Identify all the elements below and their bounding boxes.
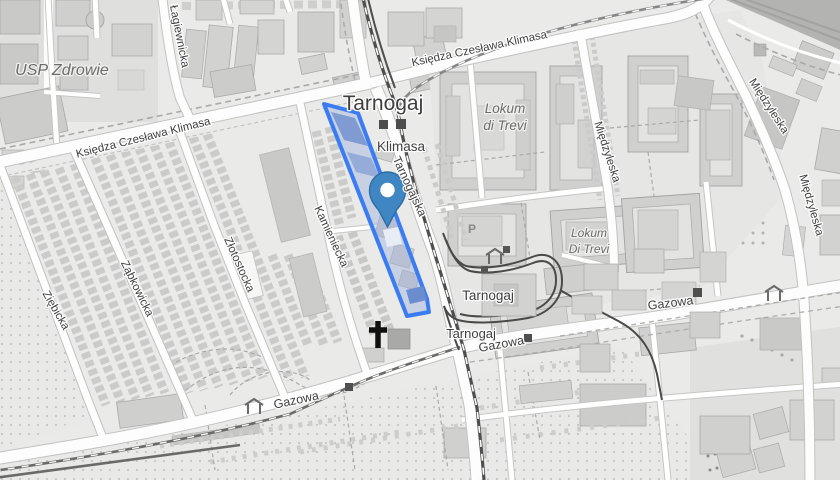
- svg-text:Lokum: Lokum: [571, 226, 607, 240]
- svg-text:P: P: [468, 222, 476, 236]
- svg-text:di Trevi: di Trevi: [483, 118, 527, 133]
- svg-text:Tarnogaj: Tarnogaj: [462, 288, 514, 303]
- svg-text:Klimasa: Klimasa: [377, 139, 426, 154]
- svg-text:Di Trevi: Di Trevi: [569, 242, 610, 256]
- svg-text:USP Zdrowie: USP Zdrowie: [15, 62, 109, 79]
- svg-text:Tarnogaj: Tarnogaj: [343, 92, 424, 115]
- svg-text:Lokum: Lokum: [485, 101, 526, 116]
